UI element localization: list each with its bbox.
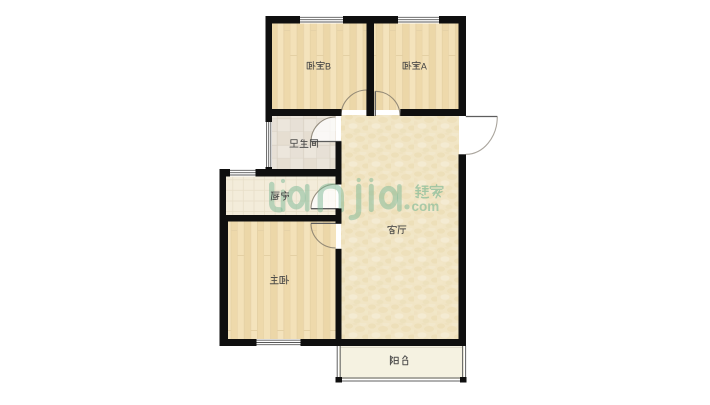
svg-text:com: com (412, 199, 440, 214)
svg-text:A: A (421, 61, 427, 71)
svg-text:B: B (325, 61, 331, 71)
